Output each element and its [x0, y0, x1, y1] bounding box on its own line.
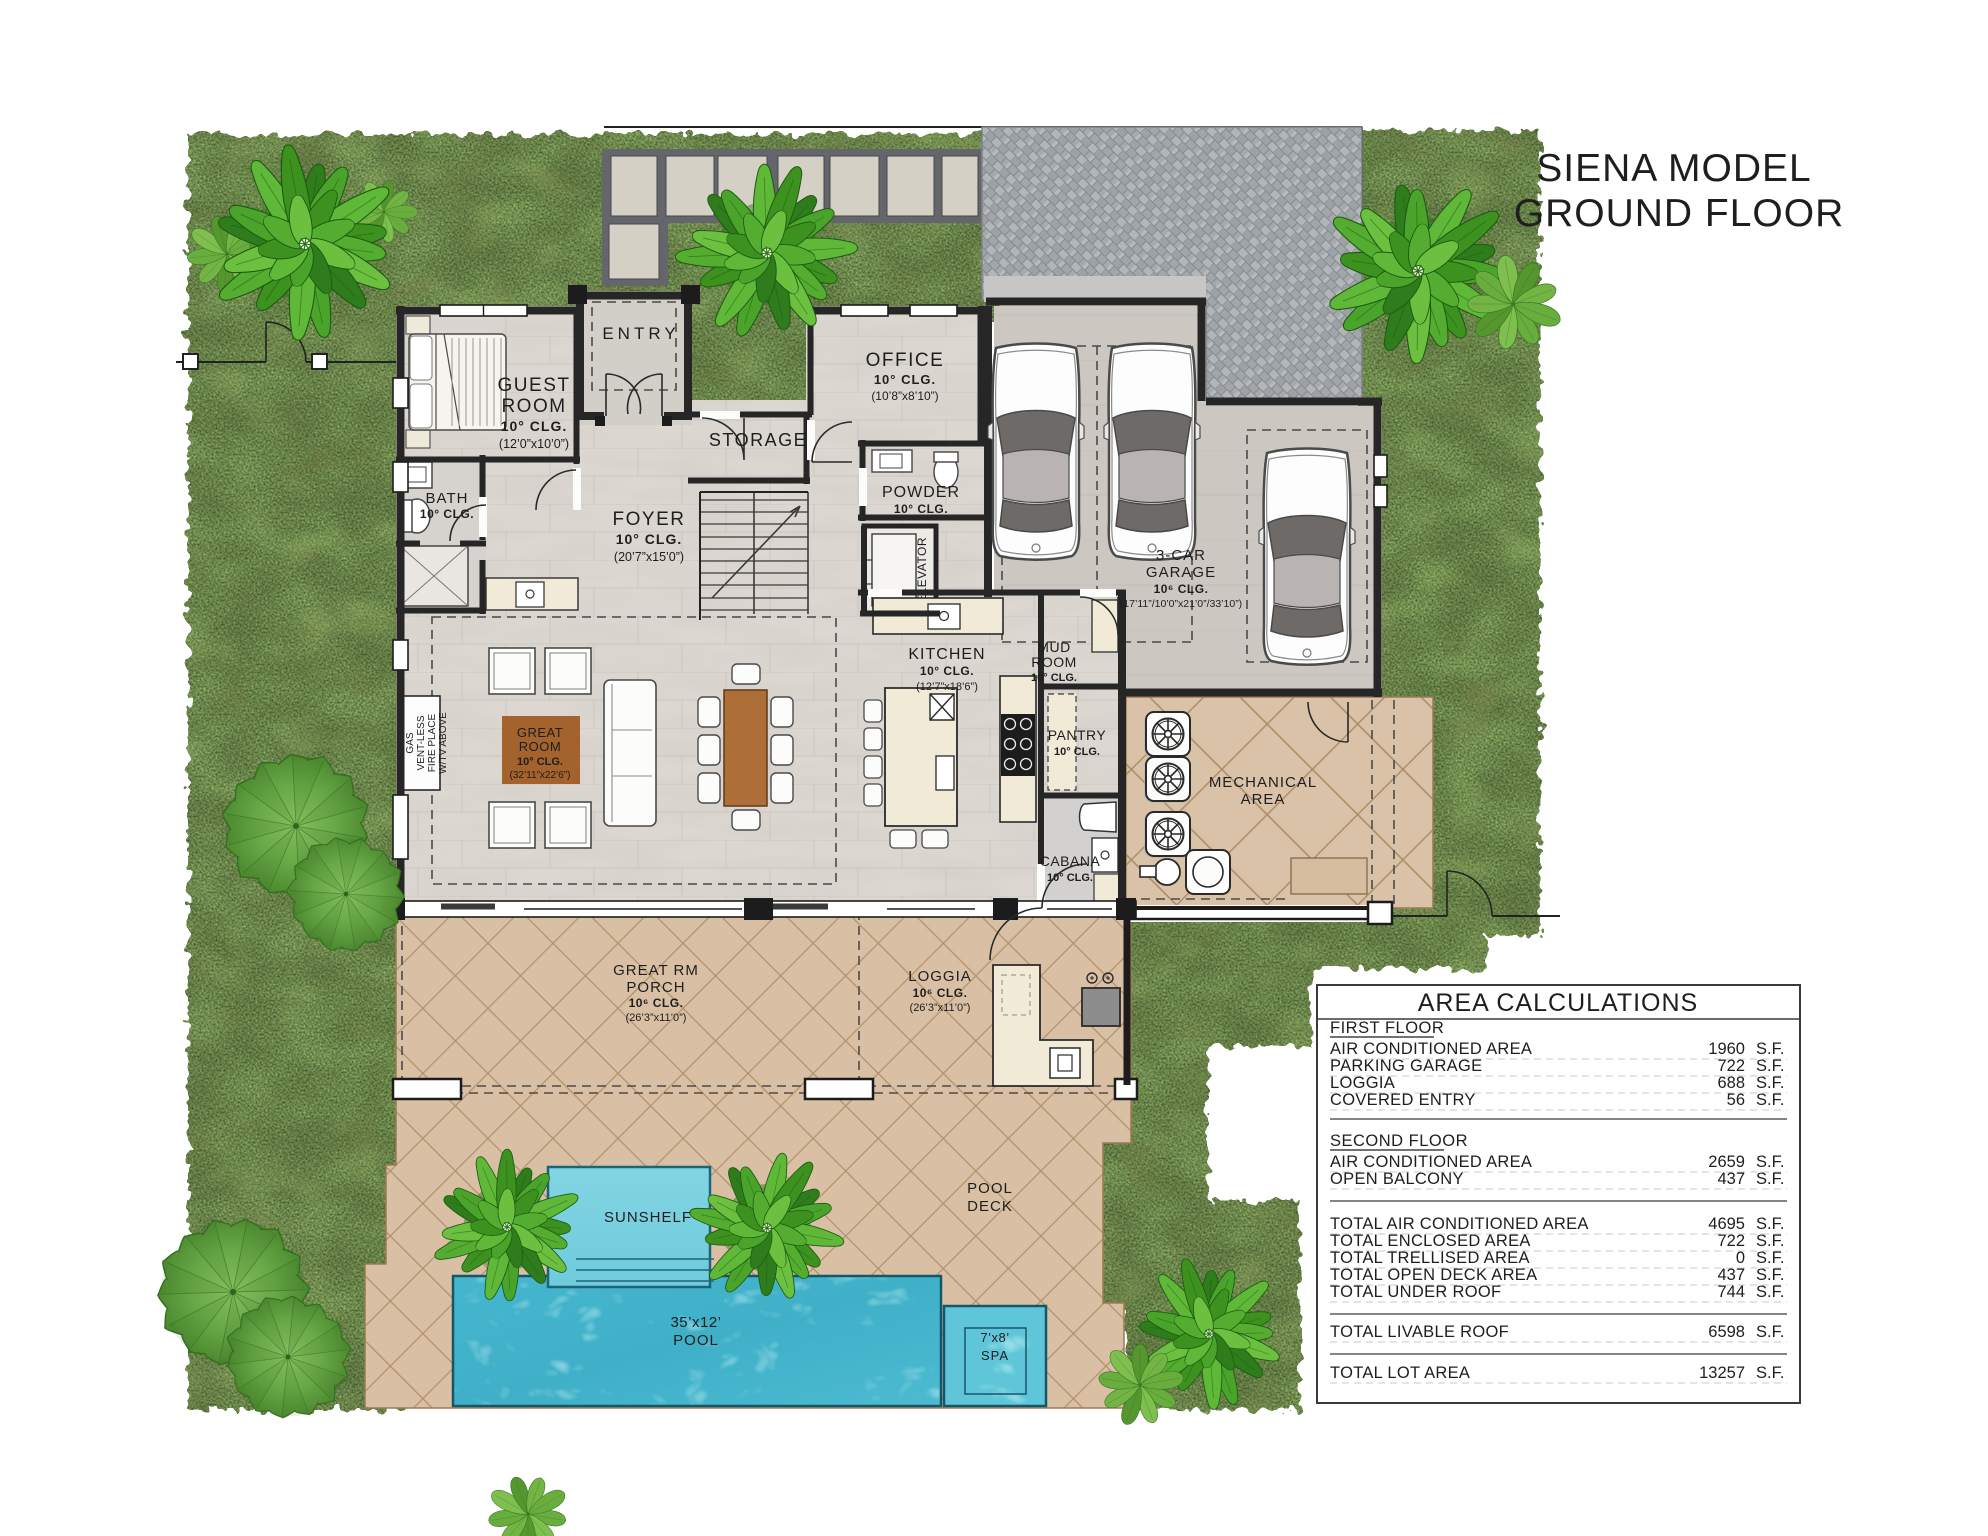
svg-text:PANTRY: PANTRY: [1048, 727, 1107, 743]
svg-text:10° CLG.: 10° CLG.: [894, 502, 948, 516]
svg-text:(12’0”x10’0”): (12’0”x10’0”): [499, 437, 569, 451]
svg-text:COVERED ENTRY: COVERED ENTRY: [1330, 1091, 1476, 1109]
svg-text:10⁶ CLG.: 10⁶ CLG.: [629, 996, 684, 1010]
svg-text:10⁶ CLG.: 10⁶ CLG.: [913, 986, 968, 1000]
svg-text:MECHANICAL: MECHANICAL: [1209, 774, 1317, 791]
svg-text:AREA: AREA: [1241, 791, 1286, 808]
svg-text:DECK: DECK: [967, 1198, 1013, 1215]
svg-text:VENT-LESS: VENT-LESS: [416, 715, 427, 770]
svg-text:(12’7”x18’6”): (12’7”x18’6”): [916, 681, 978, 693]
svg-text:TOTAL ENCLOSED AREA: TOTAL ENCLOSED AREA: [1330, 1232, 1531, 1250]
svg-text:POOL: POOL: [967, 1180, 1013, 1197]
svg-text:ROOM: ROOM: [1031, 654, 1077, 670]
svg-text:(20’7”x15’0”): (20’7”x15’0”): [614, 550, 684, 564]
svg-text:6598: 6598: [1708, 1323, 1745, 1341]
svg-text:(10’8”x8’10”): (10’8”x8’10”): [871, 389, 938, 403]
svg-text:CABANA: CABANA: [1040, 853, 1101, 869]
svg-text:TOTAL LOT AREA: TOTAL LOT AREA: [1330, 1364, 1470, 1382]
svg-text:437: 437: [1717, 1170, 1745, 1188]
svg-text:ROOM: ROOM: [519, 739, 561, 754]
svg-text:AREA CALCULATIONS: AREA CALCULATIONS: [1418, 989, 1699, 1017]
svg-text:S.F.: S.F.: [1756, 1232, 1784, 1250]
svg-text:GREAT RM: GREAT RM: [613, 962, 699, 979]
svg-text:GUEST: GUEST: [498, 375, 571, 396]
svg-text:SUNSHELF: SUNSHELF: [604, 1209, 692, 1226]
svg-text:4695: 4695: [1708, 1215, 1745, 1233]
svg-text:10° CLG.: 10° CLG.: [1047, 872, 1093, 884]
svg-text:437: 437: [1717, 1266, 1745, 1284]
svg-text:POWDER: POWDER: [882, 484, 960, 501]
svg-text:PARKING GARAGE: PARKING GARAGE: [1330, 1057, 1482, 1075]
svg-text:TOTAL LIVABLE ROOF: TOTAL LIVABLE ROOF: [1330, 1323, 1509, 1341]
svg-text:ENTRY: ENTRY: [602, 324, 679, 343]
svg-text:(26’3”x11’0”): (26’3”x11’0”): [626, 1012, 687, 1024]
svg-text:STORAGE: STORAGE: [709, 430, 807, 450]
svg-text:KITCHEN: KITCHEN: [908, 646, 985, 663]
svg-text:TOTAL TRELLISED AREA: TOTAL TRELLISED AREA: [1330, 1249, 1530, 1267]
svg-text:S.F.: S.F.: [1756, 1283, 1784, 1301]
svg-text:TOTAL OPEN DECK AREA: TOTAL OPEN DECK AREA: [1330, 1266, 1537, 1284]
svg-text:3-CAR: 3-CAR: [1156, 547, 1206, 564]
svg-text:AIR CONDITIONED AREA: AIR CONDITIONED AREA: [1330, 1040, 1532, 1058]
svg-text:13257: 13257: [1699, 1364, 1745, 1382]
svg-text:LOGGIA: LOGGIA: [908, 968, 972, 985]
svg-text:GREAT: GREAT: [517, 725, 563, 740]
svg-text:S.F.: S.F.: [1756, 1091, 1784, 1109]
svg-text:(32’11”x22’6”): (32’11”x22’6”): [510, 770, 571, 781]
svg-text:10° CLG.: 10° CLG.: [920, 664, 974, 678]
svg-text:SECOND FLOOR: SECOND FLOOR: [1330, 1132, 1468, 1150]
svg-text:SPA: SPA: [981, 1348, 1009, 1363]
svg-text:GROUND FLOOR: GROUND FLOOR: [1514, 192, 1845, 235]
svg-text:OFFICE: OFFICE: [866, 350, 945, 371]
svg-text:BATH: BATH: [426, 490, 469, 507]
svg-text:ROOM: ROOM: [501, 396, 566, 417]
svg-text:SIENA MODEL: SIENA MODEL: [1536, 147, 1811, 190]
svg-text:S.F.: S.F.: [1756, 1153, 1784, 1171]
svg-text:S.F.: S.F.: [1756, 1323, 1784, 1341]
svg-text:688: 688: [1717, 1074, 1745, 1092]
svg-text:TOTAL UNDER ROOF: TOTAL UNDER ROOF: [1330, 1283, 1501, 1301]
svg-text:PORCH: PORCH: [626, 979, 685, 996]
svg-text:10° CLG.: 10° CLG.: [874, 372, 936, 387]
svg-text:S.F.: S.F.: [1756, 1215, 1784, 1233]
svg-text:FIRST FLOOR: FIRST FLOOR: [1330, 1019, 1444, 1037]
svg-text:0: 0: [1736, 1249, 1745, 1267]
svg-text:1960: 1960: [1708, 1040, 1745, 1058]
svg-text:35’x12’: 35’x12’: [670, 1314, 721, 1331]
svg-text:POOL: POOL: [673, 1332, 719, 1349]
svg-text:S.F.: S.F.: [1756, 1266, 1784, 1284]
svg-text:(26’3”x11’0”): (26’3”x11’0”): [910, 1002, 971, 1014]
svg-text:56: 56: [1727, 1091, 1745, 1109]
svg-text:S.F.: S.F.: [1756, 1074, 1784, 1092]
svg-text:FOYER: FOYER: [613, 509, 686, 530]
svg-text:OPEN BALCONY: OPEN BALCONY: [1330, 1170, 1464, 1188]
svg-text:722: 722: [1717, 1057, 1745, 1075]
svg-text:FIRE PLACE: FIRE PLACE: [427, 714, 438, 773]
svg-text:S.F.: S.F.: [1756, 1040, 1784, 1058]
svg-text:7’x8’: 7’x8’: [980, 1330, 1009, 1345]
svg-text:S.F.: S.F.: [1756, 1057, 1784, 1075]
svg-text:W/TV ABOVE: W/TV ABOVE: [438, 712, 449, 774]
svg-text:10° CLG.: 10° CLG.: [501, 418, 568, 434]
svg-text:10° CLG.: 10° CLG.: [1031, 672, 1077, 684]
svg-text:S.F.: S.F.: [1756, 1364, 1784, 1382]
svg-text:MUD: MUD: [1037, 639, 1070, 655]
svg-text:AIR CONDITIONED AREA: AIR CONDITIONED AREA: [1330, 1153, 1532, 1171]
svg-text:722: 722: [1717, 1232, 1745, 1250]
svg-text:744: 744: [1717, 1283, 1745, 1301]
svg-text:TOTAL AIR CONDITIONED AREA: TOTAL AIR CONDITIONED AREA: [1330, 1215, 1589, 1233]
svg-text:10° CLG.: 10° CLG.: [517, 756, 563, 768]
svg-text:2659: 2659: [1708, 1153, 1745, 1171]
svg-text:GAS: GAS: [405, 732, 416, 753]
svg-text:LOGGIA: LOGGIA: [1330, 1074, 1395, 1092]
svg-text:10° CLG.: 10° CLG.: [420, 507, 474, 521]
svg-text:S.F.: S.F.: [1756, 1170, 1784, 1188]
svg-text:(17’11”/10’0”x21’0”/33’10”): (17’11”/10’0”x21’0”/33’10”): [1120, 598, 1242, 610]
svg-text:S.F.: S.F.: [1756, 1249, 1784, 1267]
svg-text:10° CLG.: 10° CLG.: [1054, 746, 1100, 758]
svg-text:10⁶ CLG.: 10⁶ CLG.: [1154, 582, 1209, 596]
svg-text:GARAGE: GARAGE: [1146, 564, 1216, 581]
svg-text:10° CLG.: 10° CLG.: [616, 531, 683, 547]
